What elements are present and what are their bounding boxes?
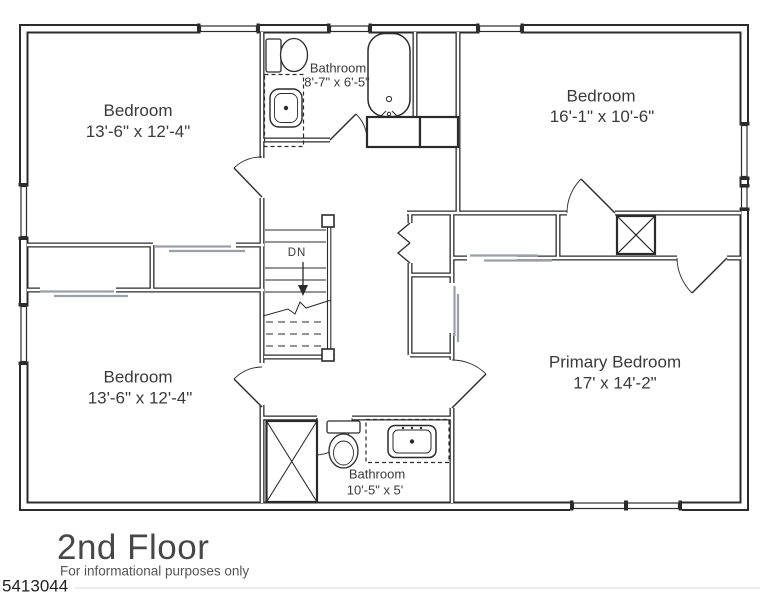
label-bathroom-bottom-name: Bathroom <box>349 467 405 482</box>
label-bedroom-top-left-dims: 13'-6" x 12'-4" <box>86 122 191 141</box>
reference-number: 5413044 <box>2 577 68 594</box>
label-bedroom-top-right-name: Bedroom <box>567 87 636 106</box>
pocket-door-closet-bottom <box>40 292 128 297</box>
pocket-door-primary-closet <box>455 286 459 342</box>
label-bathroom-top-dims: 8'-7" x 6'-5" <box>304 75 370 90</box>
window-top-3 <box>476 23 524 34</box>
stair-newel-post-bottom <box>322 349 334 361</box>
hall-niche-boxes <box>367 117 458 147</box>
label-bedroom-top-left-name: Bedroom <box>104 101 173 120</box>
shower <box>267 421 318 502</box>
stair-break-line <box>263 300 331 316</box>
chimney-x-box <box>617 216 655 254</box>
toilet-bottom <box>327 421 360 468</box>
door-primary-hall <box>452 360 486 408</box>
pocket-door-closet-top <box>155 247 245 252</box>
door-primary-corridor <box>677 258 727 293</box>
stair-down-arrow-head-icon <box>298 285 308 296</box>
window-left-2 <box>18 303 29 365</box>
label-primary-bedroom-dims: 17' x 14'-2" <box>573 374 656 393</box>
title-block: 2nd Floor For informational purposes onl… <box>2 528 760 594</box>
staircase <box>263 215 334 361</box>
niche-box-1 <box>367 117 420 147</box>
window-right-2 <box>739 184 750 211</box>
label-primary-bedroom-name: Primary Bedroom <box>549 353 681 372</box>
floor-plan-drawing: DN <box>0 0 768 594</box>
stair-railing <box>328 222 331 351</box>
toilet-top <box>266 39 308 73</box>
door-bathroom-top <box>330 114 367 140</box>
label-bathroom-top-name: Bathroom <box>310 61 366 76</box>
bathtub <box>368 34 410 117</box>
plan-title: 2nd Floor <box>57 528 209 567</box>
label-bedroom-bottom-left-dims: 13'-6" x 12'-4" <box>88 389 193 408</box>
label-bathroom-bottom-dims: 10'-5" x 5' <box>347 483 404 498</box>
floor-plan-page: DN <box>0 0 768 594</box>
label-bedroom-bottom-left-name: Bedroom <box>104 368 173 387</box>
window-right-1 <box>739 122 750 180</box>
door-bedroom-top-left <box>234 157 262 197</box>
stair-treads-solid <box>265 230 326 292</box>
window-top-1 <box>197 23 260 34</box>
stair-down-label: DN <box>288 247 307 259</box>
window-left-1 <box>18 183 29 240</box>
vanity-sink-bottom <box>366 420 449 463</box>
window-top-2 <box>327 23 372 34</box>
window-bottom-1 <box>570 500 682 511</box>
pocket-doors <box>40 247 552 343</box>
door-bedroom-top-right <box>567 179 615 213</box>
vanity-sink-top <box>265 75 304 147</box>
plan-subtitle: For informational purposes only <box>60 564 249 579</box>
door-bedroom-bottom-left <box>234 367 262 407</box>
niche-box-2 <box>420 117 458 147</box>
label-bedroom-top-right-dims: 16'-1" x 10'-6" <box>550 107 655 126</box>
stair-treads-dashed <box>266 322 326 346</box>
stair-newel-post-top <box>322 215 334 227</box>
door-linen-bifold <box>398 223 410 263</box>
doors <box>234 114 727 455</box>
